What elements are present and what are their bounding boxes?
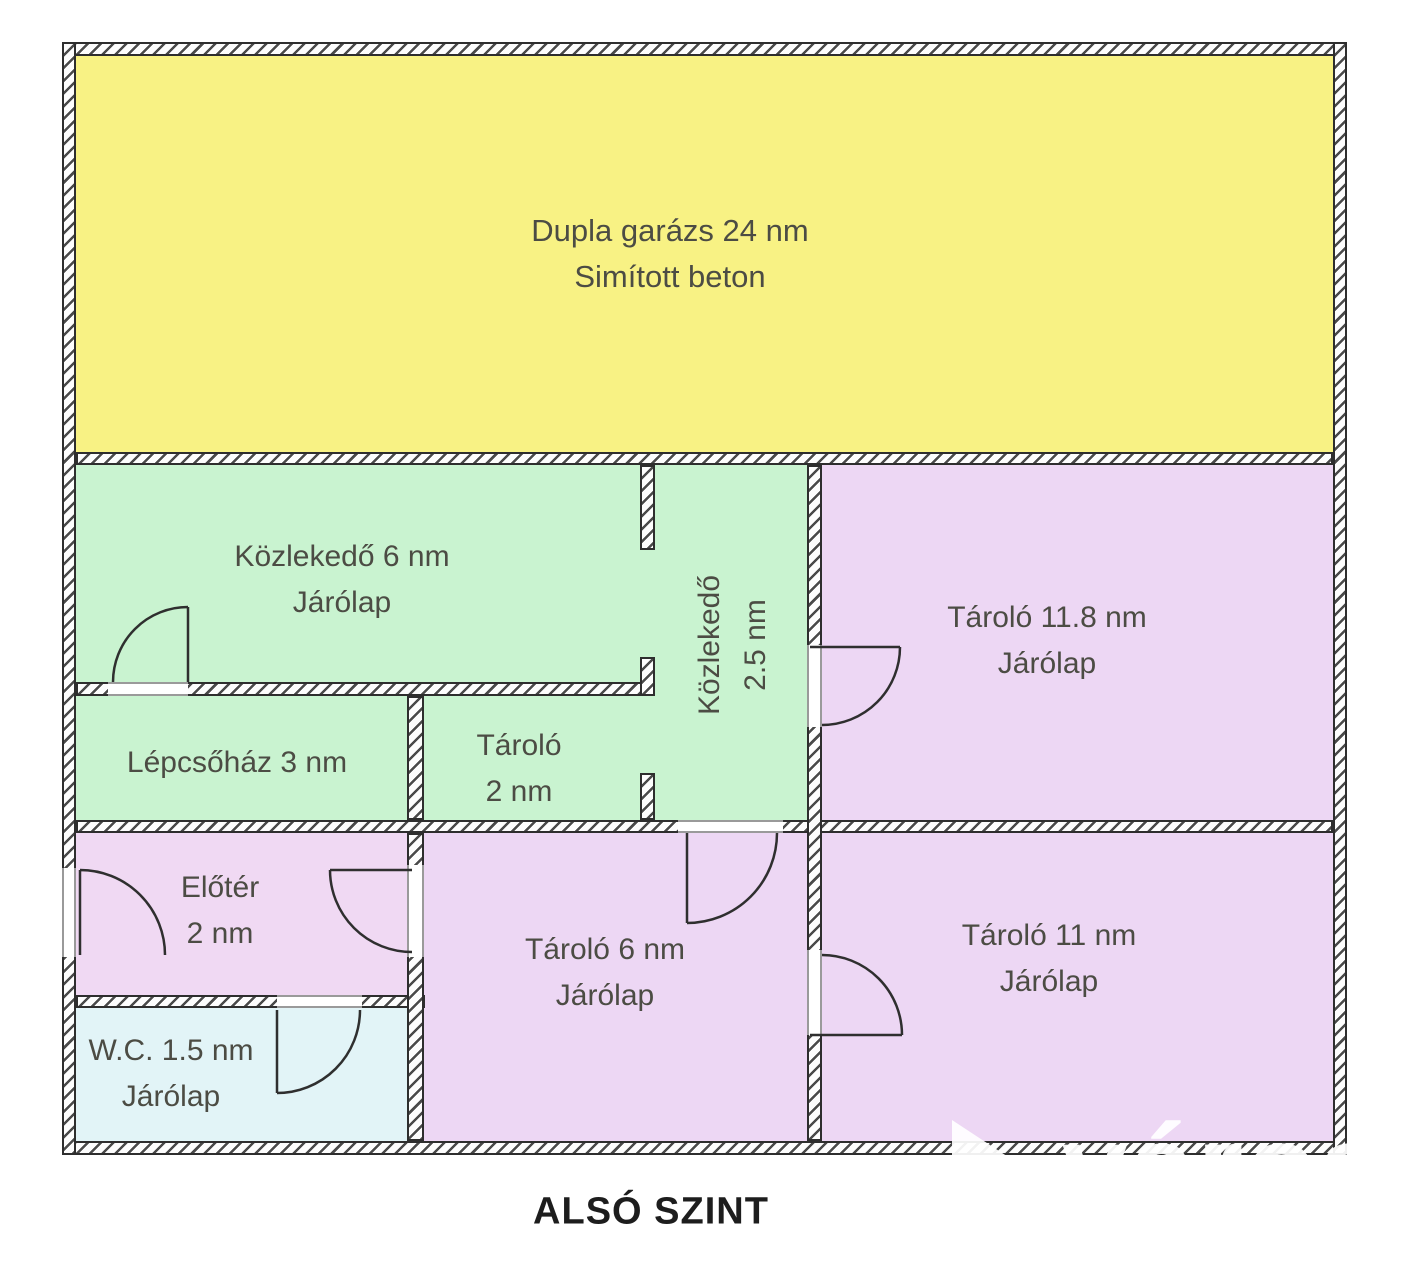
room-floor: Járólap bbox=[947, 641, 1147, 687]
room-name: Tároló 11.8 nm bbox=[947, 595, 1147, 641]
label-kozlekedo-2-5: Közlekedő 2.5 nm bbox=[687, 575, 779, 715]
room-name: Tároló bbox=[476, 723, 561, 769]
label-kozlekedo-6: Közlekedő 6 nm Járólap bbox=[234, 534, 449, 626]
wall-outer-right bbox=[1333, 42, 1347, 1155]
wall-garage-bottom bbox=[76, 452, 1333, 465]
room-name: Lépcsőház 3 nm bbox=[127, 740, 347, 786]
room-name: Tároló 11 nm bbox=[962, 913, 1137, 959]
room-name: Közlekedő 6 nm bbox=[234, 534, 449, 580]
room-name: Közlekedő bbox=[687, 575, 733, 715]
room-name: Előtér bbox=[181, 865, 259, 911]
label-wc: W.C. 1.5 nm Járólap bbox=[88, 1028, 253, 1120]
wall-eloter-wc bbox=[76, 995, 425, 1008]
room-floor: Járólap bbox=[962, 959, 1137, 1005]
room-name: Dupla garázs 24 nm bbox=[531, 208, 808, 254]
play-triangle-icon bbox=[952, 1120, 1034, 1228]
door-opening-tarolo6 bbox=[678, 820, 783, 833]
room-floor: Simított beton bbox=[531, 254, 808, 300]
door-opening-entrance bbox=[62, 868, 76, 957]
watermark-text: város bbox=[1062, 1108, 1387, 1226]
room-name: W.C. 1.5 nm bbox=[88, 1028, 253, 1074]
door-opening-eloter bbox=[407, 865, 424, 957]
wall-outer-left bbox=[62, 42, 76, 1155]
wall-corridor-left-c bbox=[640, 773, 655, 820]
floor-plan: Dupla garázs 24 nm Simított beton Közlek… bbox=[0, 0, 1409, 1280]
label-tarolo-6: Tároló 6 nm Járólap bbox=[525, 927, 685, 1019]
room-name: Tároló 6 nm bbox=[525, 927, 685, 973]
wall-corridor-left-b bbox=[640, 657, 655, 696]
door-opening-wc bbox=[277, 995, 362, 1008]
door-opening-lepcsohaz bbox=[108, 682, 188, 696]
watermark: város bbox=[952, 1108, 1387, 1228]
wall-outer-top bbox=[62, 42, 1347, 56]
door-opening-tarolo11 bbox=[807, 950, 822, 1035]
wall-corridor-left-a bbox=[640, 465, 655, 550]
label-tarolo-11: Tároló 11 nm Járólap bbox=[962, 913, 1137, 1005]
label-garage: Dupla garázs 24 nm Simított beton bbox=[531, 208, 808, 300]
label-eloter: Előtér 2 nm bbox=[181, 865, 259, 957]
room-area: 2.5 nm bbox=[733, 575, 779, 715]
label-lepcsohaz: Lépcsőház 3 nm bbox=[127, 740, 347, 786]
room-area: 2 nm bbox=[476, 769, 561, 815]
wall-corridor-right bbox=[807, 465, 822, 1141]
room-area: 2 nm bbox=[181, 911, 259, 957]
label-tarolo-2: Tároló 2 nm bbox=[476, 723, 561, 815]
door-opening-tarolo118 bbox=[807, 645, 822, 727]
room-floor: Járólap bbox=[234, 580, 449, 626]
wall-lepcsohaz-tarolo2 bbox=[407, 696, 424, 820]
label-tarolo-11-8: Tároló 11.8 nm Járólap bbox=[947, 595, 1147, 687]
room-floor: Járólap bbox=[525, 973, 685, 1019]
plan-title: ALSÓ SZINT bbox=[533, 1191, 769, 1234]
room-floor: Járólap bbox=[88, 1074, 253, 1120]
